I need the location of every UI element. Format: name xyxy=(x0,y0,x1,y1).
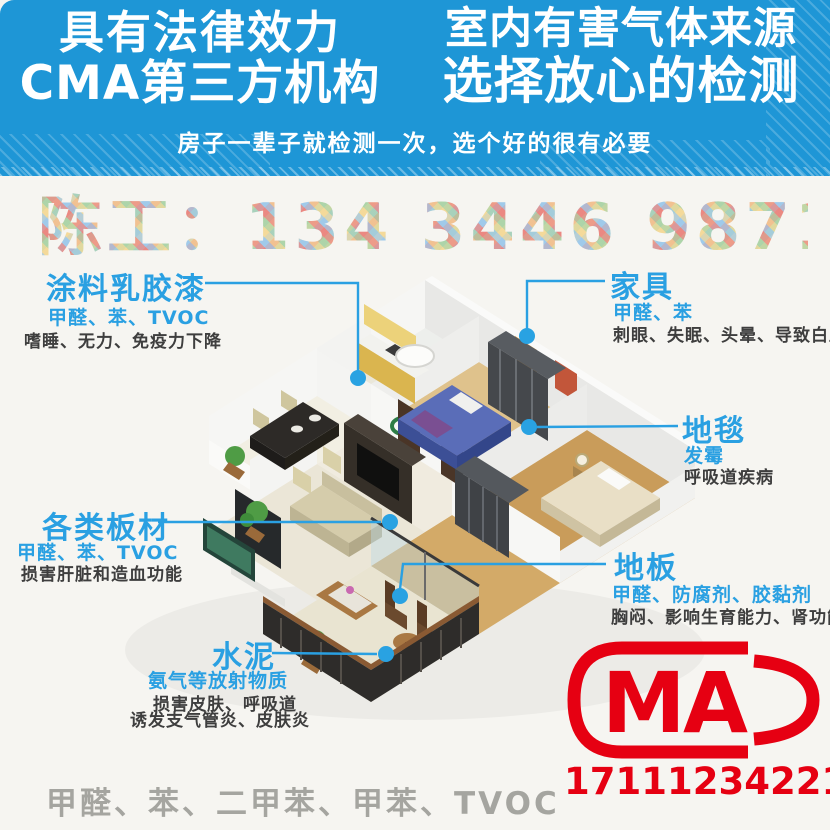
banner-subtitle: 房子一辈子就检测一次，选个好的很有必要 xyxy=(0,124,830,158)
callout-paint-substances: 甲醛、苯、TVOC xyxy=(48,303,209,330)
banner-right-block: 室内有害气体来源 选择放心的检测 xyxy=(420,5,822,109)
callout-floor-effects: 胸闷、影响生育能力、肾功能 xyxy=(611,603,830,628)
callout-boards-effects: 损害肝脏和造血功能 xyxy=(21,560,183,585)
red-code-number: 171112342214 xyxy=(564,760,804,803)
cma-letters: MA xyxy=(602,654,748,752)
banner-left-block: 具有法律效力 CMA第三方机构 xyxy=(14,8,386,111)
callout-carpet-effects: 呼吸道疾病 xyxy=(684,463,774,488)
callout-paint-title: 涂料乳胶漆 xyxy=(46,264,206,308)
stripe-decoration xyxy=(0,167,830,176)
callout-furniture-effects: 刺眼、失眠、头晕、导致白血病 xyxy=(613,321,830,346)
callout-cement-substances: 氨气等放射物质 xyxy=(148,666,288,693)
callout-paint-effects: 嗜睡、无力、免疫力下降 xyxy=(24,327,222,352)
pollutants-list: 甲醛、苯、二甲苯、甲苯、TVOC xyxy=(46,778,560,823)
banner-left-line2: CMA第三方机构 xyxy=(14,58,386,111)
callout-cement-effects-2: 诱发支气管炎、皮肤炎 xyxy=(130,706,310,731)
banner-right-line1: 室内有害气体来源 xyxy=(420,5,822,53)
poster: 具有法律效力 CMA第三方机构 室内有害气体来源 选择放心的检测 房子一辈子就检… xyxy=(0,0,830,830)
top-banner: 具有法律效力 CMA第三方机构 室内有害气体来源 选择放心的检测 房子一辈子就检… xyxy=(0,0,830,176)
banner-right-line2: 选择放心的检测 xyxy=(420,53,822,109)
cma-logo: MA xyxy=(558,638,828,763)
banner-left-line1: 具有法律效力 xyxy=(14,8,386,58)
